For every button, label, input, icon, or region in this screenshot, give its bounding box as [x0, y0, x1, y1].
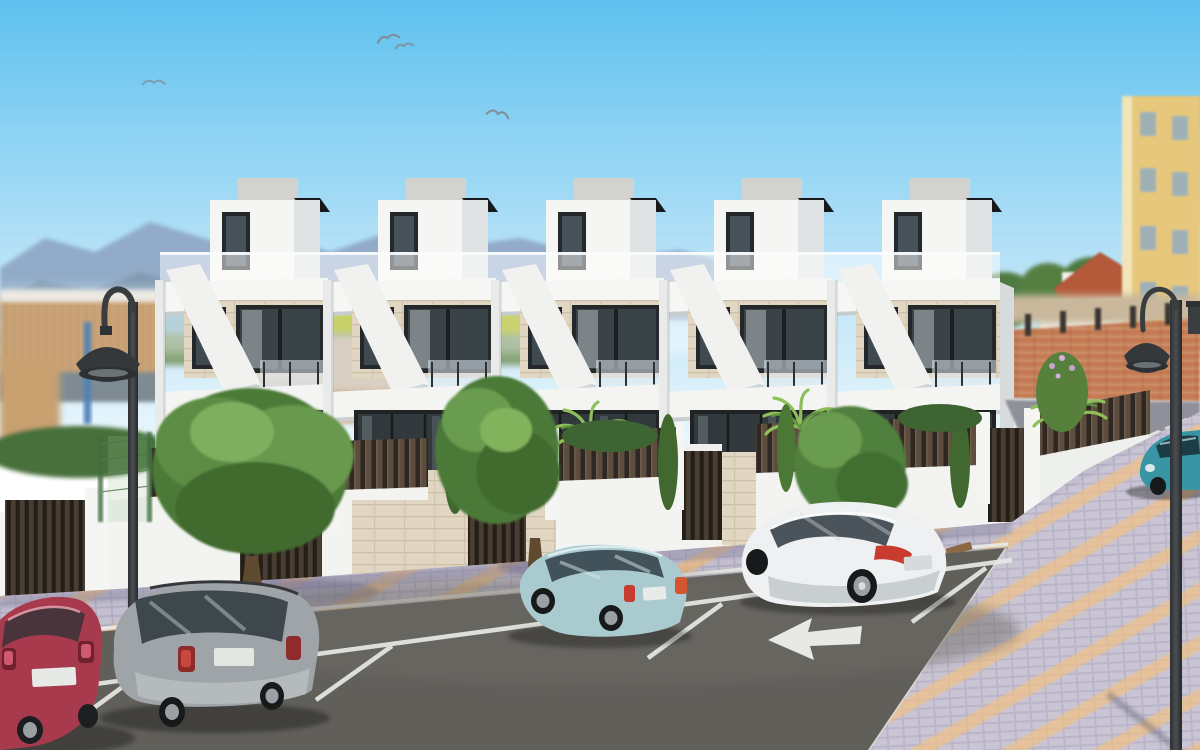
license-plate	[32, 667, 77, 687]
lamp-knob	[100, 326, 112, 335]
lamp-glow	[88, 369, 128, 377]
license-plate	[904, 555, 933, 571]
license-plate	[643, 586, 667, 601]
wheel	[78, 704, 98, 728]
taillight	[286, 636, 301, 660]
tree-canopy	[152, 388, 354, 554]
gate-5	[988, 428, 1024, 522]
headlight	[1145, 464, 1155, 472]
wheel	[1150, 477, 1166, 495]
hedge-blob	[898, 404, 982, 432]
tree-canopy	[435, 376, 560, 524]
gate-1	[5, 500, 85, 600]
lamp-pole	[128, 302, 138, 648]
wheel	[746, 549, 768, 575]
gate-4	[682, 448, 722, 540]
corner-bush	[1036, 352, 1088, 432]
timber-building-roof	[0, 290, 160, 302]
edge-lantern-cap	[1186, 301, 1200, 307]
scene-canvas	[0, 0, 1200, 750]
taillight	[624, 585, 635, 602]
car-shadow	[100, 703, 330, 733]
edge-lantern	[1188, 306, 1200, 334]
lamp-glow	[1133, 362, 1161, 368]
license-plate	[214, 648, 254, 666]
architectural-render	[0, 0, 1200, 750]
taillight	[675, 577, 687, 594]
car-silver-suv	[100, 582, 330, 733]
lamp-pole	[1170, 300, 1182, 750]
hedge-blob	[562, 420, 658, 452]
